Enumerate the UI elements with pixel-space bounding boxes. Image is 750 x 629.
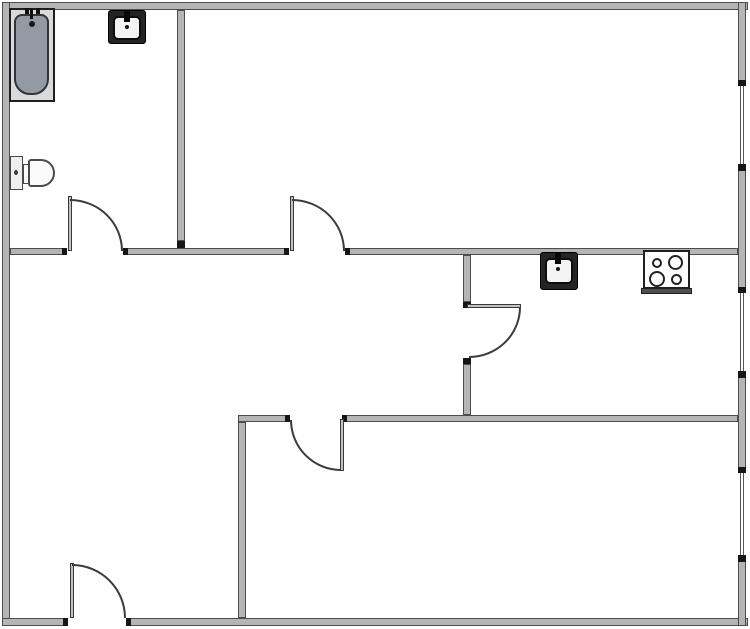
- bathtub-drain-dot: [29, 21, 35, 27]
- wall-lower-west: [238, 422, 246, 618]
- wall-exterior-right-2: [738, 164, 746, 293]
- door-kitchen-swing-arc: [469, 307, 521, 358]
- jamb: [123, 248, 128, 255]
- door-entry-swing-arc: [72, 564, 126, 618]
- window-right-2: [740, 293, 744, 371]
- jamb: [62, 248, 67, 255]
- bathtub-faucet-tick-left: [25, 8, 29, 14]
- wall-kitchen-west-1: [463, 255, 471, 302]
- door-bathroom-swing-arc: [70, 199, 123, 251]
- jamb: [126, 618, 131, 626]
- wall-exterior-right-1: [738, 2, 746, 86]
- window-cap: [738, 371, 746, 378]
- door-lower-room-swing-arc: [290, 420, 341, 471]
- wall-lower-north-2: [342, 415, 738, 422]
- kitchen-sink-dot: [556, 267, 560, 271]
- window-right-1: [740, 86, 744, 164]
- jamb: [345, 248, 350, 255]
- toilet-flush-dot: [14, 170, 18, 175]
- bathroom-sink-faucet: [124, 11, 130, 22]
- jamb: [284, 248, 289, 255]
- wall-bathroom-east: [177, 10, 185, 241]
- wall-exterior-bottom-right: [126, 618, 748, 626]
- bathtub-faucet-tick-right: [36, 8, 40, 14]
- stove-burner-small-br: [671, 274, 682, 285]
- bathtub-faucet-stem: [30, 8, 33, 19]
- bathroom-sink-dot: [125, 25, 129, 29]
- wall-exterior-bottom-left: [2, 618, 68, 626]
- wall-interior-mid-1: [10, 248, 67, 255]
- window-cap: [738, 164, 746, 171]
- wall-exterior-right-3: [738, 371, 746, 473]
- wall-exterior-top: [2, 2, 748, 10]
- floorplan-canvas: [0, 0, 750, 629]
- stove-burner-small-tl: [652, 258, 662, 268]
- window-cap: [738, 555, 746, 562]
- stove-burner-large-bl: [649, 271, 665, 287]
- kitchen-sink-faucet: [555, 253, 561, 264]
- wall-exterior-right-4: [738, 555, 746, 626]
- jamb: [63, 618, 68, 626]
- stove-burner-large-tr: [668, 255, 683, 270]
- window-right-3: [740, 473, 744, 555]
- door-top-room-swing-arc: [292, 199, 345, 251]
- jamb: [463, 358, 471, 364]
- jamb: [177, 241, 185, 248]
- wall-interior-mid-2: [123, 248, 289, 255]
- stove-front-bar: [641, 288, 692, 294]
- wall-lower-north-1: [238, 415, 290, 422]
- toilet-bowl: [28, 159, 55, 187]
- wall-kitchen-west-2: [463, 364, 471, 415]
